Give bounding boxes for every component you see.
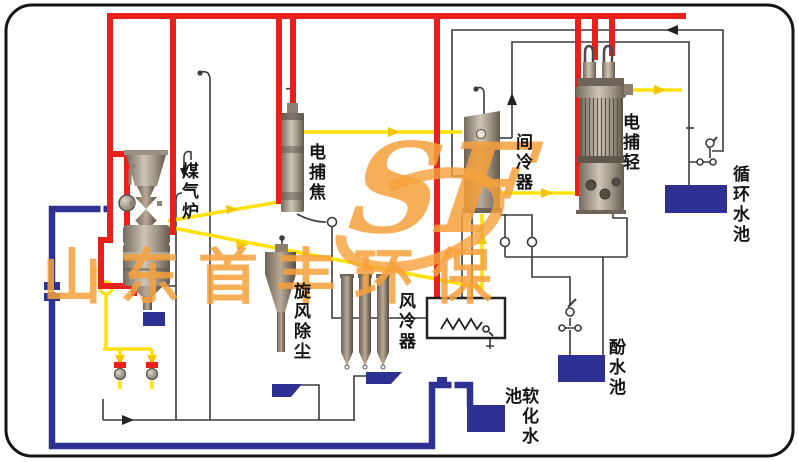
label-softened-water-pool: 软化水池 [502,387,536,462]
label-intercooler: 间冷器 [513,133,530,193]
process-flow-diagram: SF 山东首丰环保 煤气炉 电捕焦 间冷器 电捕轻 循环水池 旋风除尘 风冷器 … [0,0,799,462]
softened-water-pool-tank [467,405,505,432]
label-cyclone-dust-collector: 旋风除尘 [291,282,308,362]
label-gas-furnace: 煤气炉 [179,162,196,222]
phenol-pool-tank [558,355,605,382]
label-circulating-pool: 循环水池 [730,165,747,245]
label-phenol-pool: 酚水池 [606,338,623,398]
watermark-company-text: 山东首丰环保 [42,229,510,316]
tar-precipitator-vessel [281,103,304,212]
circulating-pool-tank [665,185,727,213]
label-tar-precipitator: 电捕焦 [306,143,323,203]
label-air-cooler: 风冷器 [396,292,413,352]
label-light-oil-precipitator: 电捕轻 [620,113,637,173]
